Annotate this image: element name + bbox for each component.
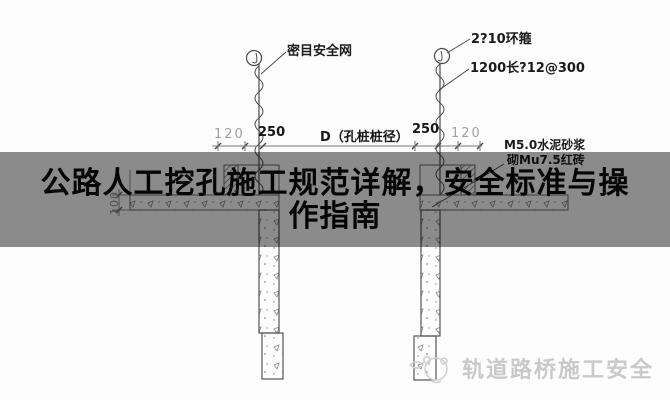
dim-pile-diameter: D（孔桩桩径） <box>320 126 409 145</box>
safety-net-label: 密目安全网 <box>287 45 352 59</box>
rebar-label: 1200长?12@300 <box>470 62 585 76</box>
dim-right-wall: 250 <box>412 122 439 137</box>
panda-logo-icon <box>406 351 452 385</box>
banner-title-line2: 作指南 <box>289 200 382 233</box>
dim-right-outer: 120 <box>451 126 482 141</box>
title-banner: 公路人工挖孔施工规范详解，安全标准与操 作指南 <box>0 152 670 247</box>
mortar-label: M5.0水泥砂浆 <box>504 139 585 152</box>
watermark-text: 轨道路桥施工安全 <box>462 352 654 384</box>
thumbnail-image: 密目安全网 2?10环箍 1200长?12@300 M5.0水泥砂浆 砌Mu7.… <box>0 0 670 400</box>
watermark: 轨道路桥施工安全 <box>406 350 654 386</box>
dim-left-outer: 120 <box>214 127 245 142</box>
hoop-label: 2?10环箍 <box>471 33 532 47</box>
banner-title-line1: 公路人工挖孔施工规范详解，安全标准与操 <box>41 167 630 200</box>
dim-left-wall: 250 <box>258 125 285 140</box>
